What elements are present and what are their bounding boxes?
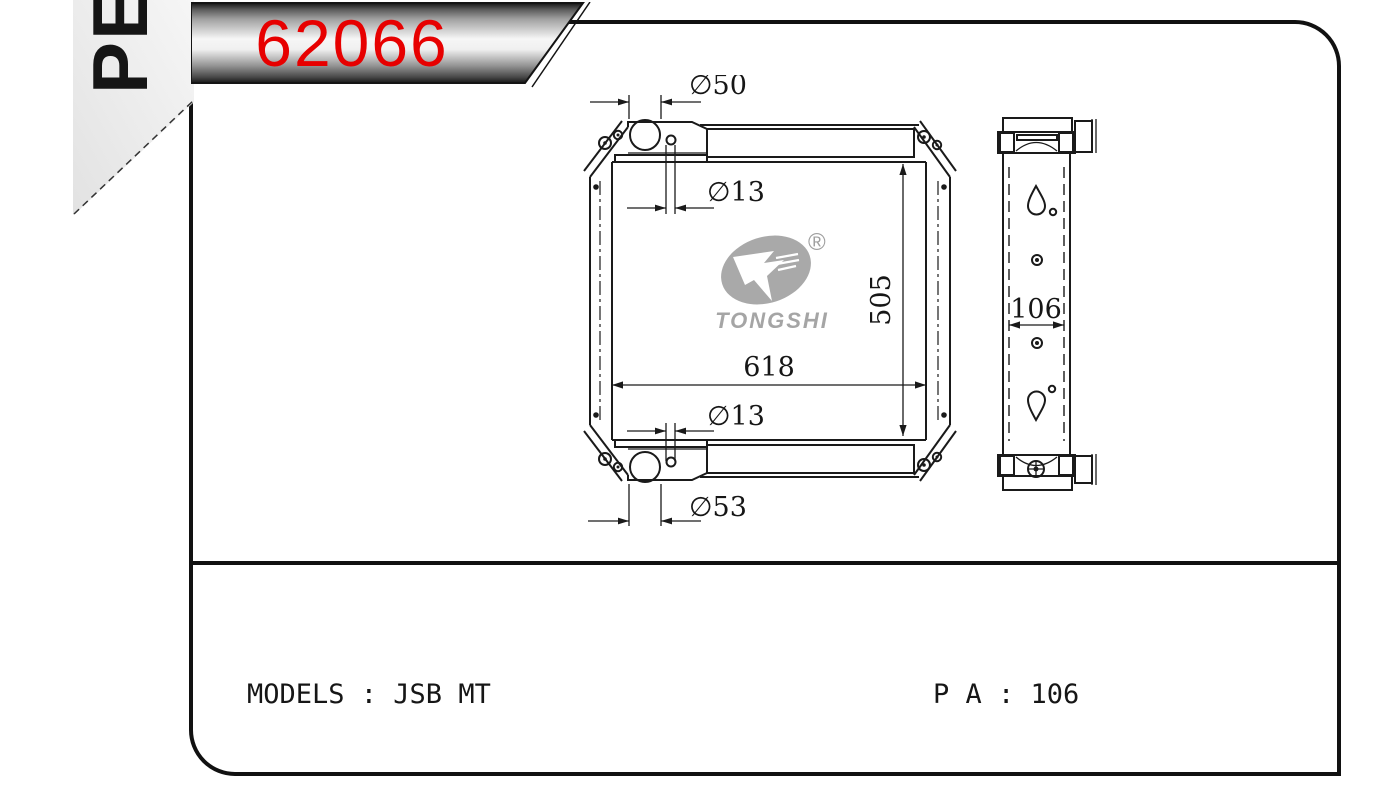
part-number-banner: 62066 bbox=[191, 2, 593, 90]
ribbon-text: PE bbox=[76, 0, 164, 94]
technical-drawing: ∅50 ∅13 505 618 bbox=[570, 75, 1130, 550]
side-top-cap bbox=[998, 118, 1096, 153]
spec-list-left: MODELS : JSB MT CORE SIZE : 505×618 TANK… bbox=[247, 587, 621, 792]
dim-bottom-neck: ∅53 bbox=[588, 484, 747, 526]
registered-mark: ® bbox=[808, 229, 826, 256]
side-view: 106 bbox=[998, 118, 1096, 490]
top-pipe bbox=[1075, 121, 1092, 152]
spec-divider-line bbox=[189, 561, 1341, 565]
drain-neck bbox=[630, 452, 660, 482]
frame-rivet bbox=[593, 412, 599, 418]
dim-top-neck: ∅50 bbox=[590, 75, 747, 119]
dim-top-hole-label: ∅13 bbox=[707, 177, 765, 208]
spec-list-right: P A : 106 DPI : OEM : NISSENS: bbox=[933, 587, 1079, 792]
dim-depth-label: 106 bbox=[1010, 294, 1062, 325]
corner-ribbon: PE bbox=[73, 0, 195, 218]
frame-rivet bbox=[593, 184, 599, 190]
dim-core-height: 505 bbox=[866, 164, 907, 436]
filler-neck bbox=[630, 120, 660, 150]
frame-rivet bbox=[941, 184, 947, 190]
spec-pa: P A : 106 bbox=[933, 673, 1079, 716]
frame-rivet bbox=[941, 412, 947, 418]
tongshi-logo: ® TONGSHI bbox=[712, 224, 829, 333]
dim-core-width-label: 618 bbox=[743, 352, 795, 383]
top-small-hole bbox=[667, 136, 676, 145]
pin-hole bbox=[1050, 209, 1056, 215]
dim-core-height-label: 505 bbox=[866, 274, 897, 326]
dim-depth: 106 bbox=[1009, 294, 1064, 329]
top-tank bbox=[612, 120, 926, 162]
bottom-small-hole bbox=[667, 458, 676, 467]
pin-hole bbox=[1049, 386, 1055, 392]
spec-models: MODELS : JSB MT bbox=[247, 673, 621, 716]
keyhole-top bbox=[1028, 186, 1045, 215]
dim-bottom-neck-label: ∅53 bbox=[689, 492, 747, 523]
dim-top-neck-label: ∅50 bbox=[689, 75, 747, 101]
logo-brand-text: TONGSHI bbox=[715, 308, 829, 333]
dim-core-width: 618 bbox=[612, 352, 926, 389]
side-bottom-cap bbox=[998, 454, 1096, 490]
keyhole-bottom bbox=[1028, 392, 1045, 421]
part-number: 62066 bbox=[255, 6, 449, 80]
radiator-datasheet-page: PE 62066 bbox=[0, 0, 1399, 792]
dim-bottom-hole-label: ∅13 bbox=[707, 401, 765, 432]
bottom-pipe bbox=[1075, 456, 1092, 483]
bottom-tank bbox=[612, 440, 926, 482]
